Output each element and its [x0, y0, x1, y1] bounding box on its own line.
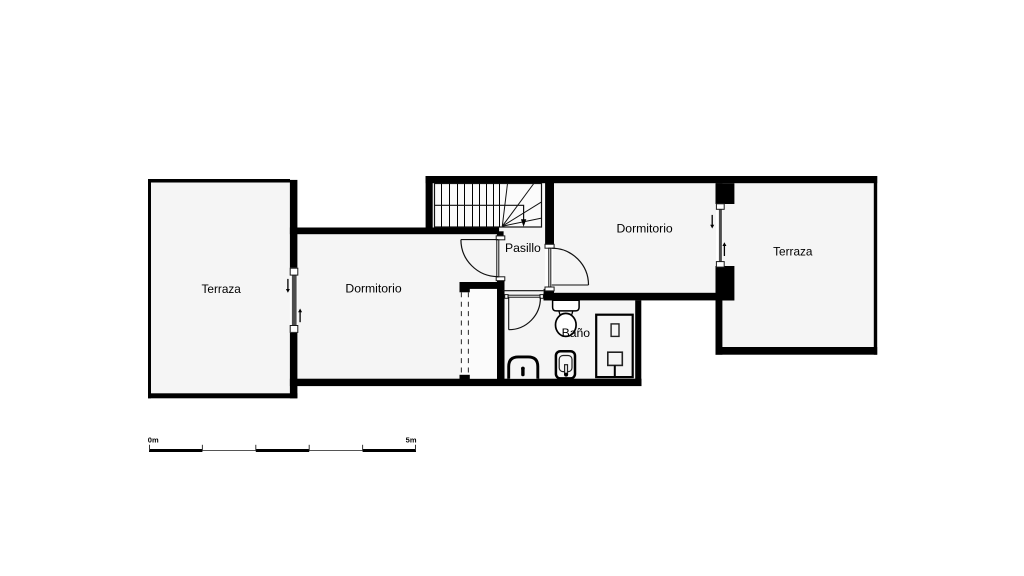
svg-text:Dormitorio: Dormitorio: [616, 221, 672, 235]
svg-text:Dormitorio: Dormitorio: [345, 282, 401, 296]
svg-text:Terraza: Terraza: [773, 245, 813, 259]
svg-text:0m: 0m: [148, 436, 159, 445]
svg-text:5m: 5m: [406, 436, 417, 445]
svg-text:Pasillo: Pasillo: [505, 241, 541, 255]
svg-text:Baño: Baño: [562, 326, 591, 340]
svg-text:Terraza: Terraza: [202, 282, 242, 296]
